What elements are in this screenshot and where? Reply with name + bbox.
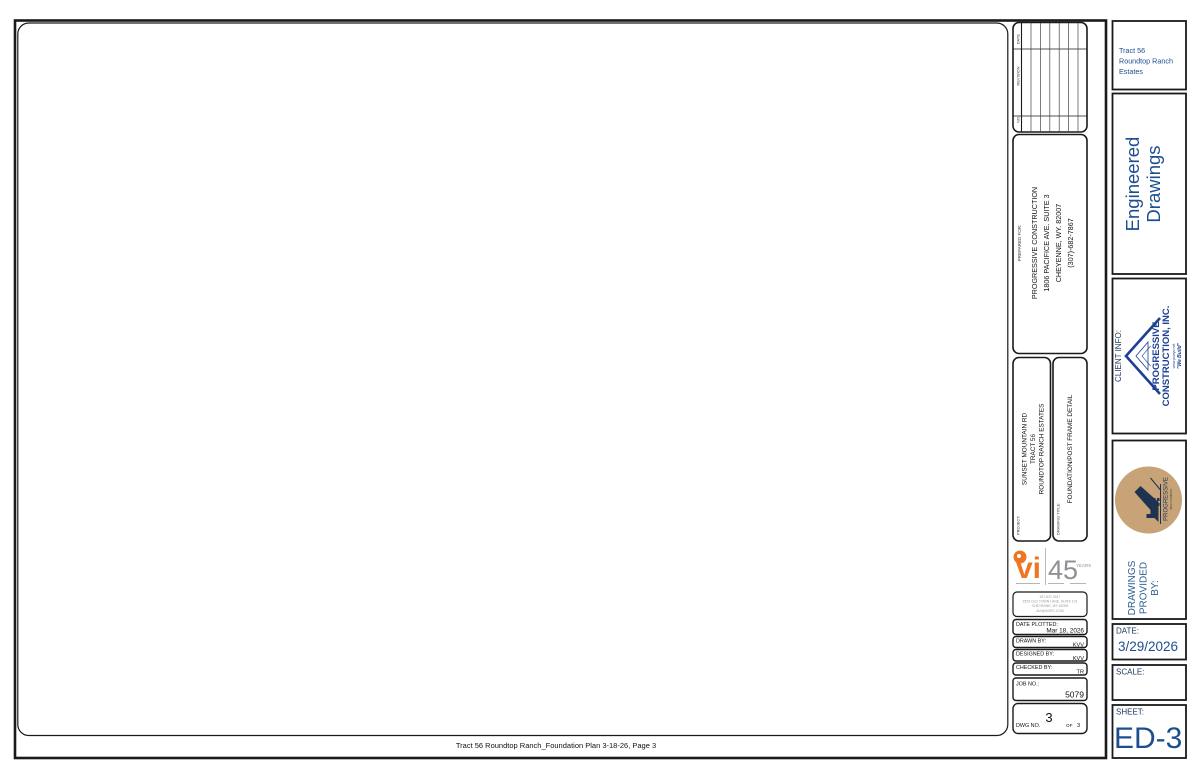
svg-text:BY:: BY: [1150, 580, 1161, 596]
svg-text:CHEYENNE, WY 82009: CHEYENNE, WY 82009 [1032, 604, 1069, 608]
svg-text:NO.: NO. [1016, 116, 1021, 123]
svg-text:3: 3 [1045, 710, 1052, 725]
svg-text:KVV: KVV [1073, 642, 1084, 648]
svg-text:DWG NO.: DWG NO. [1016, 723, 1040, 729]
svg-text:PROGRESSIVE CONSTRUCTION: PROGRESSIVE CONSTRUCTION [1030, 187, 1039, 299]
svg-text:DRAWINGS: DRAWINGS [1127, 560, 1138, 615]
svg-text:KVV: KVV [1073, 656, 1084, 662]
svg-text:PROVIDED: PROVIDED [1139, 562, 1150, 614]
svg-text:FOUNDATION/POST FRAME DETAIL: FOUNDATION/POST FRAME DETAIL [1067, 394, 1074, 503]
svg-text:SHEET:: SHEET: [1116, 708, 1144, 717]
svg-text:ROUNDTOP RANCH ESTATES: ROUNDTOP RANCH ESTATES [1039, 404, 1046, 495]
svg-text:TRACT 56: TRACT 56 [1030, 434, 1037, 465]
svg-text:Mar 18, 2026: Mar 18, 2026 [1046, 628, 1084, 635]
svg-text:CHEYENNE, WY. 82007: CHEYENNE, WY. 82007 [1054, 204, 1063, 283]
svg-text:CHECKED BY:: CHECKED BY: [1016, 665, 1052, 671]
svg-text:Drawings: Drawings [1143, 145, 1164, 222]
svg-text:CONSTRUCTION, INC.: CONSTRUCTION, INC. [1161, 306, 1172, 407]
svg-text:PROGRESSIVE: PROGRESSIVE [1164, 477, 1170, 521]
svg-text:Tract 56: Tract 56 [1119, 46, 1145, 55]
svg-text:45: 45 [1048, 555, 1078, 585]
svg-text:SCALE:: SCALE: [1116, 668, 1144, 677]
svg-text:AVI@AVIPC.COM: AVI@AVIPC.COM [1036, 609, 1064, 613]
svg-text:1806 PACIFICE AVE. SUITE 3: 1806 PACIFICE AVE. SUITE 3 [1042, 194, 1051, 291]
svg-text:REVISION: REVISION [1016, 66, 1021, 85]
svg-text:BUILT COMPANY: BUILT COMPANY [1169, 488, 1173, 509]
svg-text:DESIGNED BY:: DESIGNED BY: [1016, 652, 1054, 658]
svg-text:(307)-682-7867: (307)-682-7867 [1066, 218, 1075, 268]
svg-text:SUNSET MOUNTAIN RD: SUNSET MOUNTAIN RD [1022, 413, 1029, 486]
svg-text:"We Build": "We Build" [1177, 342, 1183, 369]
svg-text:307-637-0017: 307-637-0017 [1039, 595, 1060, 599]
svg-text:DRAWN BY:: DRAWN BY: [1016, 638, 1046, 644]
svg-text:DATE:: DATE: [1116, 627, 1139, 636]
svg-text:CLIENT INFO:: CLIENT INFO: [1114, 330, 1123, 382]
svg-text:www.pcwyo.net: www.pcwyo.net [1172, 344, 1176, 369]
svg-text:Roundtop Ranch: Roundtop Ranch [1119, 57, 1173, 66]
svg-text:JOB NO.:: JOB NO.: [1016, 681, 1039, 687]
svg-text:DATE: DATE [1016, 34, 1021, 45]
svg-text:YEARS: YEARS [1076, 563, 1091, 568]
svg-text:5079: 5079 [1065, 689, 1084, 699]
svg-text:TR: TR [1077, 670, 1084, 676]
svg-text:PROJECT:: PROJECT: [1016, 516, 1021, 535]
svg-text:Engineered: Engineered [1122, 137, 1143, 232]
svg-text:Tract 56 Roundtop Ranch_Founda: Tract 56 Roundtop Ranch_Foundation Plan … [456, 741, 656, 750]
svg-text:3: 3 [1077, 723, 1080, 729]
svg-text:Estates: Estates [1119, 67, 1143, 76]
svg-text:OF: OF [1066, 723, 1073, 728]
svg-text:PREPARED FOR:: PREPARED FOR: [1017, 225, 1022, 261]
svg-text:1553 OLD TOWN LANE, SUITE 101: 1553 OLD TOWN LANE, SUITE 101 [1023, 600, 1078, 604]
svg-text:ED-3: ED-3 [1114, 722, 1182, 755]
svg-text:3/29/2026: 3/29/2026 [1118, 639, 1178, 654]
svg-text:DRAWING TITLE:: DRAWING TITLE: [1056, 503, 1061, 535]
